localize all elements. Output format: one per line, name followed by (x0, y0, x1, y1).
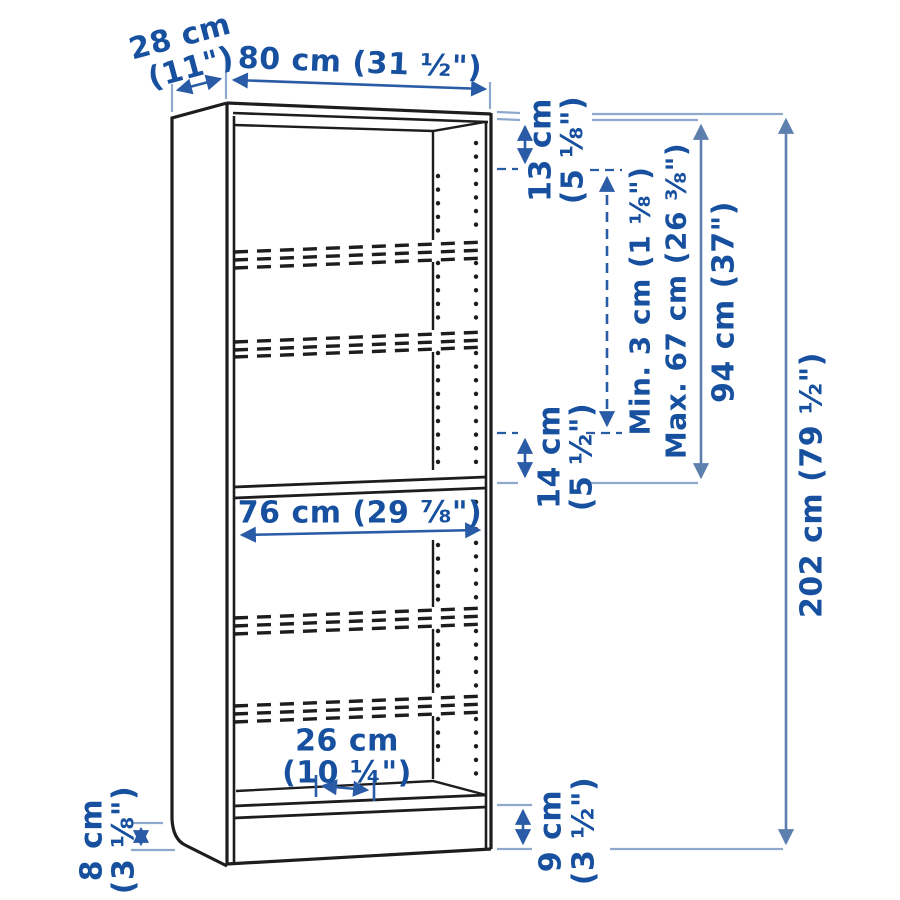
dim-mid-gap-label-in: (5 ½") (565, 403, 600, 511)
dimension-arrow (242, 530, 479, 535)
extension-line (497, 119, 520, 120)
dim-base-right-label-in: (3 ½") (567, 777, 602, 885)
dim-mid-gap: 14 cm (5 ½") (497, 403, 600, 511)
top-edge-inner (233, 113, 488, 122)
extension-line (497, 112, 520, 113)
adjustable-shelf-1 (234, 242, 486, 268)
dim-base-left-label-cm: 8 cm (75, 799, 110, 881)
dim-upper-section-label: 94 cm (37") (707, 201, 742, 403)
top-edge-outer (227, 103, 491, 114)
dim-total-height-label: 202 cm (79 ½") (795, 352, 830, 618)
dim-inner-depth-label-cm: 26 cm (295, 724, 399, 759)
dim-mid-gap-label-cm: 14 cm (533, 405, 568, 509)
dim-base-right-label-cm: 9 cm (534, 790, 569, 872)
dim-width-label: 80 cm (31 ½") (237, 41, 483, 86)
dimension-diagram: 28 cm (11") 80 cm (31 ½") 13 cm (5 ⅛") M… (0, 0, 900, 900)
dim-top-gap-label-cm: 13 cm (524, 98, 559, 202)
dim-shelf-min-max: Min. 3 cm (1 ⅛") Max. 67 cm (26 ⅜") (586, 143, 693, 459)
dim-depth: 28 cm (11") (125, 7, 237, 112)
dim-base-left: 8 cm (3 ⅛") (75, 786, 176, 894)
dim-base-left-label-in: (3 ⅛") (107, 786, 142, 894)
bookcase-diagram-canvas: 28 cm (11") 80 cm (31 ½") 13 cm (5 ⅛") M… (0, 0, 900, 900)
dim-max-label: Max. 67 cm (26 ⅜") (660, 143, 693, 459)
dim-inner-width: 76 cm (29 ⅞") (238, 496, 482, 536)
plinth-bottom-edge (227, 849, 491, 864)
top-panel-back-edge (234, 122, 485, 131)
left-side-panel-outline (172, 103, 227, 866)
dim-width: 80 cm (31 ½") (234, 41, 490, 109)
adjustable-shelf-2 (234, 332, 486, 357)
dim-base-right: 9 cm (3 ½") (497, 777, 602, 885)
dim-inner-depth-label-in: (10 ¼") (282, 756, 412, 791)
dim-min-label: Min. 3 cm (1 ⅛") (624, 167, 657, 436)
adjustable-shelf-3 (234, 608, 486, 634)
dim-inner-depth: 26 cm (10 ¼") (282, 724, 412, 802)
adjustable-shelf-4 (234, 696, 486, 722)
dim-inner-width-label: 76 cm (29 ⅞") (238, 496, 482, 531)
dim-top-gap-label-in: (5 ⅛") (556, 96, 591, 204)
